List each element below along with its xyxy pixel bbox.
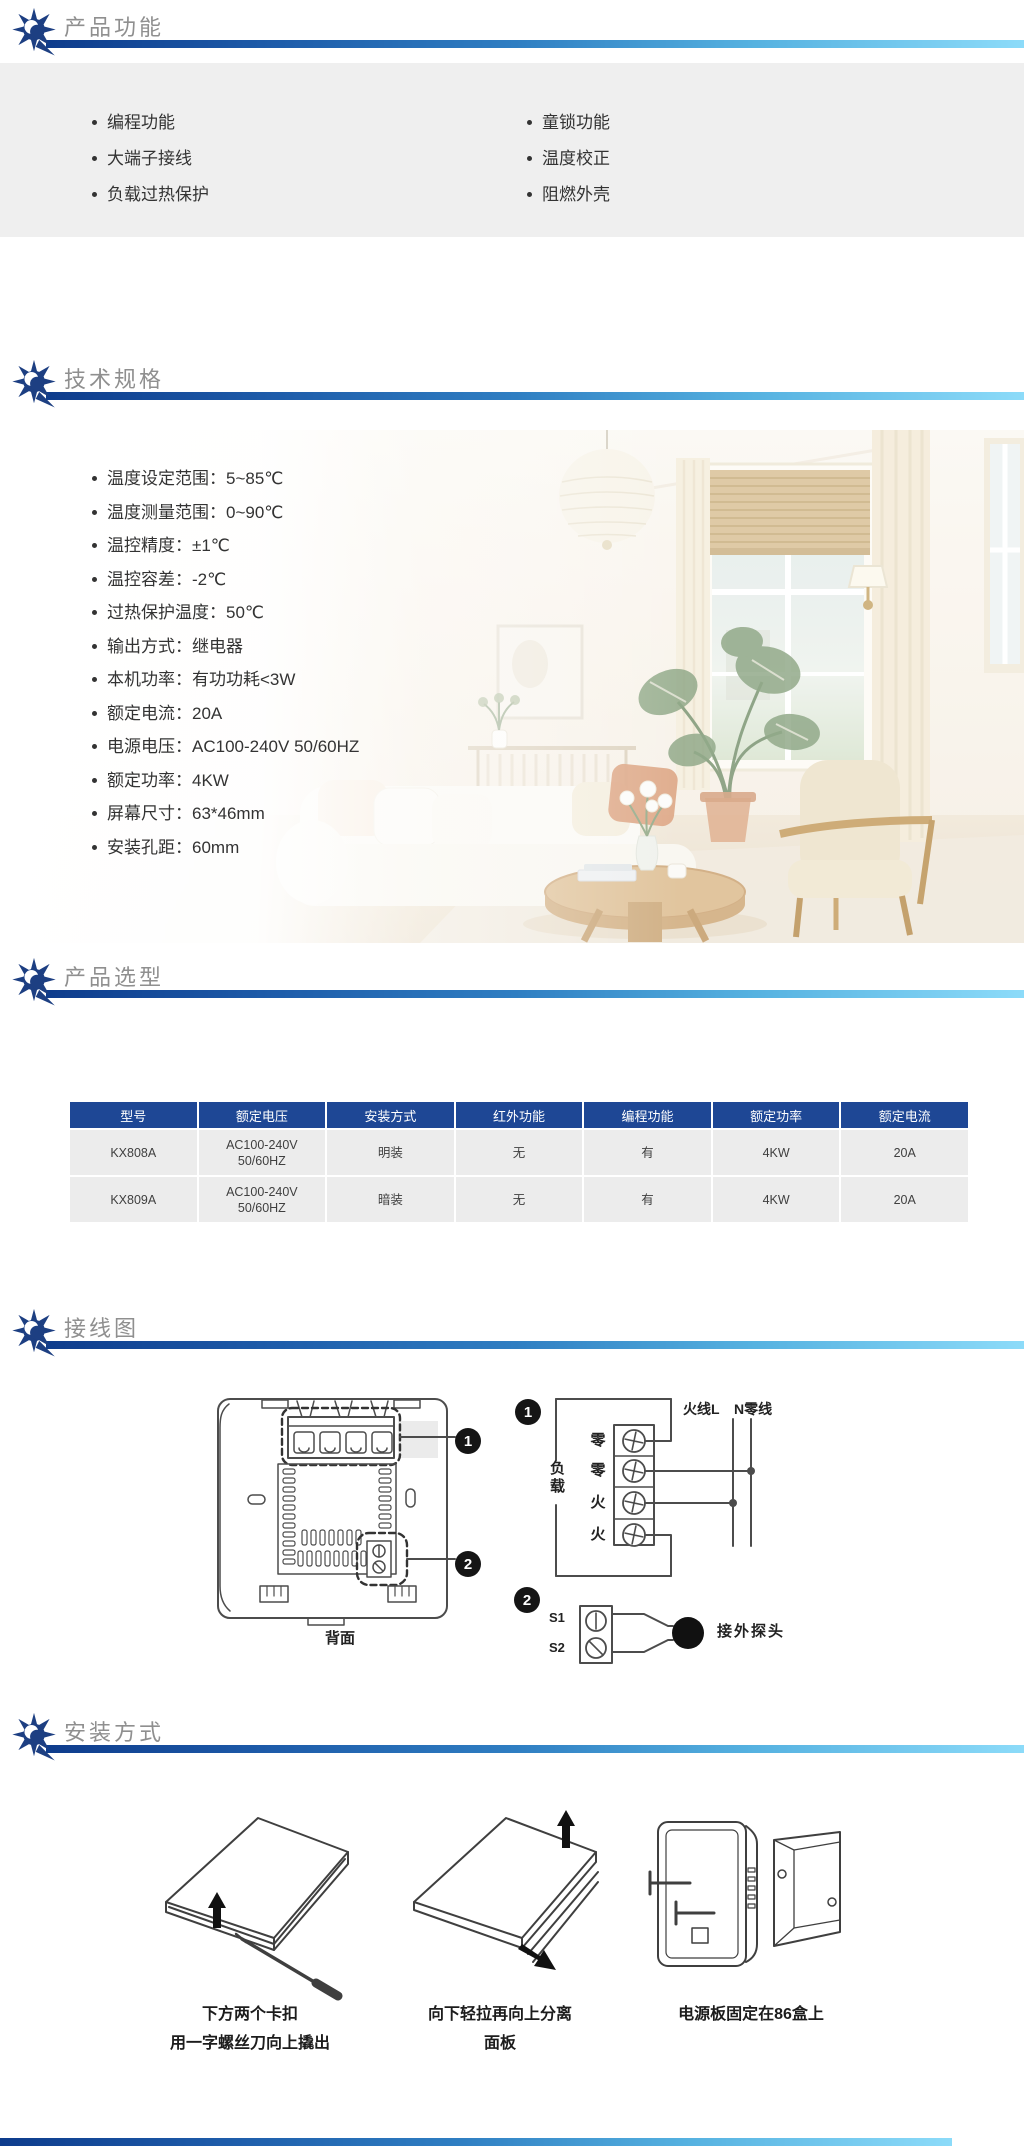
table-cell: KX808A: [70, 1130, 197, 1175]
section-gradient-bar: [46, 392, 1024, 400]
table-cell: 4KW: [713, 1177, 840, 1222]
circuit-badge-2: 2: [514, 1587, 540, 1613]
section-header-selection: 产品选型: [0, 958, 1024, 1020]
spec-item: 温控容差：-2℃: [92, 569, 359, 590]
terminal-label-neutral: 零: [586, 1461, 610, 1481]
table-header-cell: 额定电流: [841, 1102, 968, 1128]
feature-item: 编程功能: [92, 112, 209, 133]
footer-gradient-bar: [0, 2138, 952, 2146]
install-step1-drawing: [152, 1806, 357, 2001]
page: 产品功能 编程功能 大端子接线 负载过热保护 童锁功能 温度校正 阻燃外壳 技术…: [0, 0, 1024, 2150]
section-header-installation: 安装方式: [0, 1713, 1024, 1775]
install-step3-drawing: [642, 1810, 862, 1978]
feature-item: 阻燃外壳: [527, 184, 610, 205]
brand-gear-icon: [8, 4, 60, 62]
table-cell: 无: [456, 1177, 583, 1222]
brand-gear-icon: [8, 1305, 60, 1363]
feature-item: 大端子接线: [92, 148, 209, 169]
install-step2-drawing: [400, 1806, 605, 2001]
section-title-installation: 安装方式: [64, 1715, 164, 1747]
spec-item: 安装孔距：60mm: [92, 837, 359, 858]
table-header-cell: 型号: [70, 1102, 197, 1128]
section-gradient-bar: [46, 990, 1024, 998]
table-cell: 20A: [841, 1130, 968, 1175]
spec-item: 温度设定范围：5~85℃: [92, 468, 359, 489]
probe-label: 接外探头: [717, 1622, 785, 1642]
table-cell: KX809A: [70, 1177, 197, 1222]
brand-gear-icon: [8, 356, 60, 414]
circuit-badge-1: 1: [515, 1399, 541, 1425]
spec-item: 额定功率：4KW: [92, 770, 359, 791]
feature-item: 温度校正: [527, 148, 610, 169]
neutral-wire-label: N零线: [734, 1399, 772, 1419]
table-cell: 明装: [327, 1130, 454, 1175]
spec-item: 过热保护温度：50℃: [92, 602, 359, 623]
section-header-specs: 技术规格: [0, 360, 1024, 422]
terminal-label-live: 火: [586, 1493, 610, 1513]
caption-line: 面板: [370, 2029, 630, 2058]
sensor-terminal-s2: S2: [549, 1638, 565, 1658]
terminal-label-neutral: 零: [586, 1431, 610, 1451]
caption-line: 向下轻拉再向上分离: [370, 2000, 630, 2029]
section-gradient-bar: [46, 1745, 1024, 1753]
caption-line: 电源板固定在86盒上: [621, 2000, 881, 2029]
section-title-specs: 技术规格: [64, 362, 164, 394]
feature-item: 负载过热保护: [92, 184, 209, 205]
section-title-features: 产品功能: [64, 10, 164, 42]
table-cell: 暗装: [327, 1177, 454, 1222]
caption-line: 用一字螺丝刀向上撬出: [120, 2029, 380, 2058]
section-title-wiring: 接线图: [64, 1311, 139, 1343]
table-cell: 有: [584, 1177, 711, 1222]
feature-item: 童锁功能: [527, 112, 610, 133]
table-header-cell: 安装方式: [327, 1102, 454, 1128]
features-list-left: 编程功能 大端子接线 负载过热保护: [92, 112, 209, 220]
table-header-cell: 额定电压: [199, 1102, 326, 1128]
brand-gear-icon: [8, 954, 60, 1012]
spec-item: 输出方式：继电器: [92, 636, 359, 657]
table-cell: AC100-240V 50/60HZ: [199, 1130, 326, 1175]
section-gradient-bar: [46, 40, 1024, 48]
spec-item: 电源电压：AC100-240V 50/60HZ: [92, 736, 359, 757]
table-cell: 4KW: [713, 1130, 840, 1175]
spec-item: 温控精度：±1℃: [92, 535, 359, 556]
caption-line: 下方两个卡扣: [120, 2000, 380, 2029]
section-header-features: 产品功能: [0, 8, 1024, 70]
brand-gear-icon: [8, 1709, 60, 1767]
table-cell: 无: [456, 1130, 583, 1175]
spec-item: 额定电流：20A: [92, 703, 359, 724]
callout-badge-1: 1: [455, 1428, 481, 1454]
install-step3-caption: 电源板固定在86盒上: [621, 2000, 881, 2029]
features-list-right: 童锁功能 温度校正 阻燃外壳: [527, 112, 610, 220]
table-header-cell: 编程功能: [584, 1102, 711, 1128]
load-label: 负载: [546, 1460, 566, 1496]
install-step2-caption: 向下轻拉再向上分离 面板: [370, 2000, 630, 2058]
table-header-cell: 红外功能: [456, 1102, 583, 1128]
section-header-wiring: 接线图: [0, 1309, 1024, 1371]
terminal-label-live: 火: [586, 1525, 610, 1545]
table-cell: 有: [584, 1130, 711, 1175]
live-wire-label: 火线L: [683, 1399, 720, 1419]
section-gradient-bar: [46, 1341, 1024, 1349]
spec-item: 温度测量范围：0~90℃: [92, 502, 359, 523]
install-step1-caption: 下方两个卡扣 用一字螺丝刀向上撬出: [120, 2000, 380, 2058]
spec-item: 屏幕尺寸：63*46mm: [92, 803, 359, 824]
section-title-selection: 产品选型: [64, 960, 164, 992]
back-view-label: 背面: [312, 1629, 368, 1649]
table-cell: 20A: [841, 1177, 968, 1222]
table-header-cell: 额定功率: [713, 1102, 840, 1128]
callout-badge-2: 2: [455, 1551, 481, 1577]
spec-item: 本机功率：有功功耗<3W: [92, 669, 359, 690]
specs-list: 温度设定范围：5~85℃ 温度测量范围：0~90℃ 温控精度：±1℃ 温控容差：…: [92, 468, 359, 870]
sensor-terminal-s1: S1: [549, 1608, 565, 1628]
selection-table: 型号 额定电压 安装方式 红外功能 编程功能 额定功率 额定电流 KX808A …: [70, 1102, 968, 1222]
table-cell: AC100-240V 50/60HZ: [199, 1177, 326, 1222]
